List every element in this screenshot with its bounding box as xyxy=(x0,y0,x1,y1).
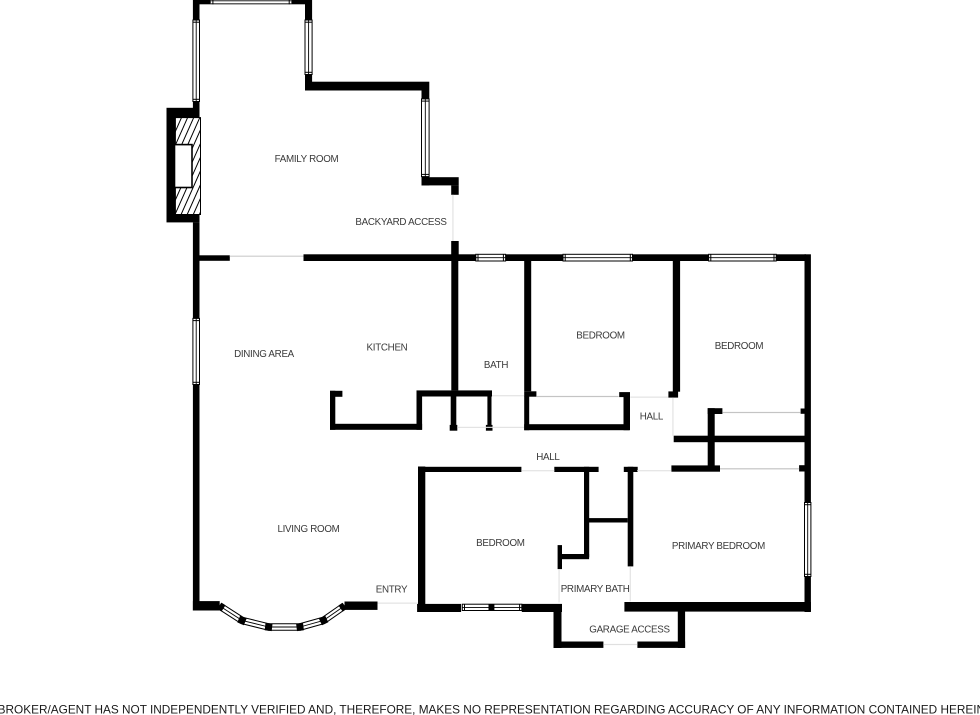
svg-text:KITCHEN: KITCHEN xyxy=(367,343,408,354)
svg-text:GARAGE ACCESS: GARAGE ACCESS xyxy=(589,625,670,636)
svg-text:LIVING ROOM: LIVING ROOM xyxy=(277,524,339,535)
svg-text:PRIMARY BATH: PRIMARY BATH xyxy=(561,584,630,595)
svg-text:BEDROOM: BEDROOM xyxy=(476,538,525,549)
svg-text:BATH: BATH xyxy=(484,360,508,371)
svg-text:HALL: HALL xyxy=(536,452,560,463)
svg-text:ENTRY: ENTRY xyxy=(376,585,408,596)
svg-text:BEDROOM: BEDROOM xyxy=(576,330,625,341)
svg-text:BACKYARD ACCESS: BACKYARD ACCESS xyxy=(355,217,447,228)
svg-text:BEDROOM: BEDROOM xyxy=(715,341,764,352)
svg-text:HALL: HALL xyxy=(640,411,664,422)
svg-text:FAMILY ROOM: FAMILY ROOM xyxy=(275,154,339,165)
svg-text:DINING AREA: DINING AREA xyxy=(234,349,295,360)
svg-text:BROKER/AGENT HAS NOT INDEPENDE: BROKER/AGENT HAS NOT INDEPENDENTLY VERIF… xyxy=(0,703,980,715)
svg-text:PRIMARY BEDROOM: PRIMARY BEDROOM xyxy=(672,541,765,552)
